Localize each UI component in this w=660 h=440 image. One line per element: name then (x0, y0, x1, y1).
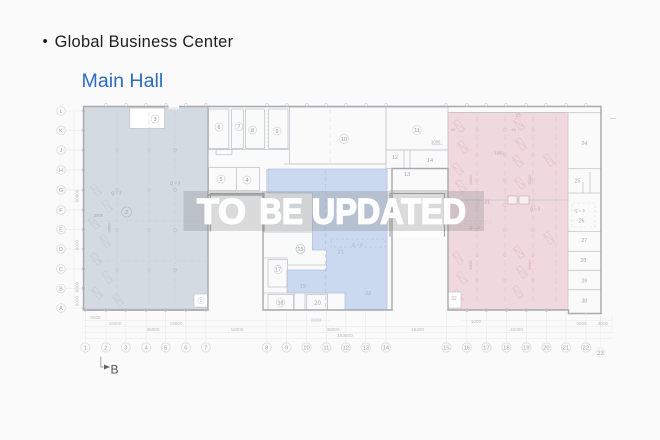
svg-text:8: 8 (265, 346, 268, 352)
svg-text:E: E (59, 228, 63, 234)
svg-text:29: 29 (582, 278, 588, 284)
svg-text:18000: 18000 (231, 327, 244, 332)
svg-text:16: 16 (464, 346, 470, 352)
svg-text:13: 13 (362, 346, 368, 352)
svg-text:10: 10 (341, 137, 347, 143)
svg-text:13: 13 (404, 172, 410, 178)
svg-text:Q = 3: Q = 3 (111, 191, 122, 196)
svg-text:7: 7 (238, 124, 241, 130)
svg-text:B: B (111, 363, 119, 377)
svg-text:F: F (59, 208, 63, 214)
svg-text:26: 26 (579, 219, 585, 225)
svg-text:6000: 6000 (576, 321, 587, 326)
svg-text:Q = 3: Q = 3 (170, 181, 181, 186)
svg-text:8: 8 (251, 128, 254, 134)
svg-text:10: 10 (303, 346, 309, 352)
svg-text:6000: 6000 (75, 239, 80, 250)
svg-text:2: 2 (125, 210, 128, 216)
svg-text:11: 11 (323, 346, 329, 352)
svg-text:1: 1 (84, 346, 87, 352)
svg-text:28: 28 (580, 258, 586, 264)
svg-text:6000: 6000 (75, 295, 80, 306)
svg-text:22: 22 (583, 346, 589, 352)
svg-text:19: 19 (523, 346, 529, 352)
svg-text:1900: 1900 (494, 151, 504, 156)
svg-text:20: 20 (314, 301, 321, 307)
svg-text:3000: 3000 (598, 321, 609, 326)
svg-text:L: L (59, 109, 62, 115)
svg-text:18000: 18000 (170, 321, 183, 326)
svg-text:31: 31 (484, 200, 490, 206)
svg-text:4: 4 (246, 178, 249, 184)
svg-text:7: 7 (204, 346, 207, 352)
svg-text:25: 25 (575, 179, 581, 185)
svg-text:36000: 36000 (327, 327, 340, 332)
svg-text:Q = 3: Q = 3 (574, 208, 585, 213)
svg-text:A: A (59, 306, 63, 312)
svg-text:Q = 3: Q = 3 (530, 207, 541, 212)
svg-text:3: 3 (124, 346, 127, 352)
svg-text:18: 18 (278, 300, 284, 306)
svg-text:C: C (59, 267, 63, 273)
svg-text:6000: 6000 (468, 260, 473, 270)
svg-text:45: 45 (511, 127, 516, 132)
svg-text:153800: 153800 (337, 333, 353, 338)
svg-text:J: J (60, 148, 63, 154)
svg-text:1000: 1000 (471, 319, 482, 324)
svg-text:19: 19 (300, 284, 306, 290)
svg-text:4: 4 (145, 346, 149, 352)
svg-text:12: 12 (392, 155, 398, 161)
svg-text:6000: 6000 (527, 260, 532, 270)
svg-text:21: 21 (338, 250, 344, 256)
svg-text:Q = 3: Q = 3 (352, 242, 363, 247)
svg-text:32: 32 (451, 296, 457, 302)
svg-text:6000: 6000 (468, 175, 473, 185)
svg-text:15: 15 (443, 346, 449, 352)
svg-text:B: B (59, 287, 63, 293)
svg-text:15: 15 (298, 247, 304, 253)
svg-text:23: 23 (597, 350, 604, 357)
svg-text:12: 12 (343, 346, 349, 352)
svg-text:17: 17 (483, 346, 489, 352)
svg-text:36000: 36000 (147, 327, 160, 332)
svg-text:14: 14 (427, 158, 433, 164)
svg-text:22: 22 (365, 291, 371, 297)
svg-text:TOBEUPDATED: TOBEUPDATED (197, 192, 466, 232)
svg-text:G: G (59, 188, 63, 194)
svg-text:24: 24 (581, 141, 587, 147)
svg-text:21: 21 (563, 346, 569, 352)
svg-text:H: H (59, 168, 63, 174)
svg-text:9: 9 (276, 129, 279, 135)
svg-text:9: 9 (285, 346, 288, 352)
svg-text:1000: 1000 (431, 139, 441, 144)
svg-text:18000: 18000 (109, 321, 122, 326)
svg-text:6000: 6000 (90, 315, 101, 320)
svg-text:2: 2 (104, 346, 107, 352)
svg-text:5: 5 (220, 177, 223, 183)
svg-text:K: K (59, 129, 63, 135)
svg-text:3: 3 (154, 117, 157, 123)
svg-text:9000: 9000 (107, 223, 112, 233)
svg-text:23: 23 (515, 113, 521, 118)
svg-text:60000: 60000 (75, 189, 80, 202)
svg-text:27: 27 (582, 238, 588, 244)
svg-text:D: D (59, 247, 63, 253)
svg-text:2000: 2000 (311, 318, 322, 323)
svg-text:18: 18 (503, 346, 509, 352)
svg-text:6: 6 (184, 346, 187, 352)
svg-text:5: 5 (164, 346, 167, 352)
svg-text:11: 11 (414, 128, 420, 134)
svg-text:30: 30 (582, 298, 588, 304)
svg-text:20: 20 (543, 346, 549, 352)
svg-text:45: 45 (451, 127, 456, 132)
svg-text:18400: 18400 (411, 327, 424, 332)
svg-text:6000: 6000 (527, 175, 532, 185)
svg-text:45000: 45000 (510, 327, 523, 332)
svg-text:6000: 6000 (75, 281, 80, 292)
svg-text:14: 14 (383, 346, 390, 352)
svg-text:17: 17 (275, 267, 281, 273)
svg-text:2000: 2000 (94, 213, 104, 218)
svg-text:6: 6 (218, 125, 221, 131)
